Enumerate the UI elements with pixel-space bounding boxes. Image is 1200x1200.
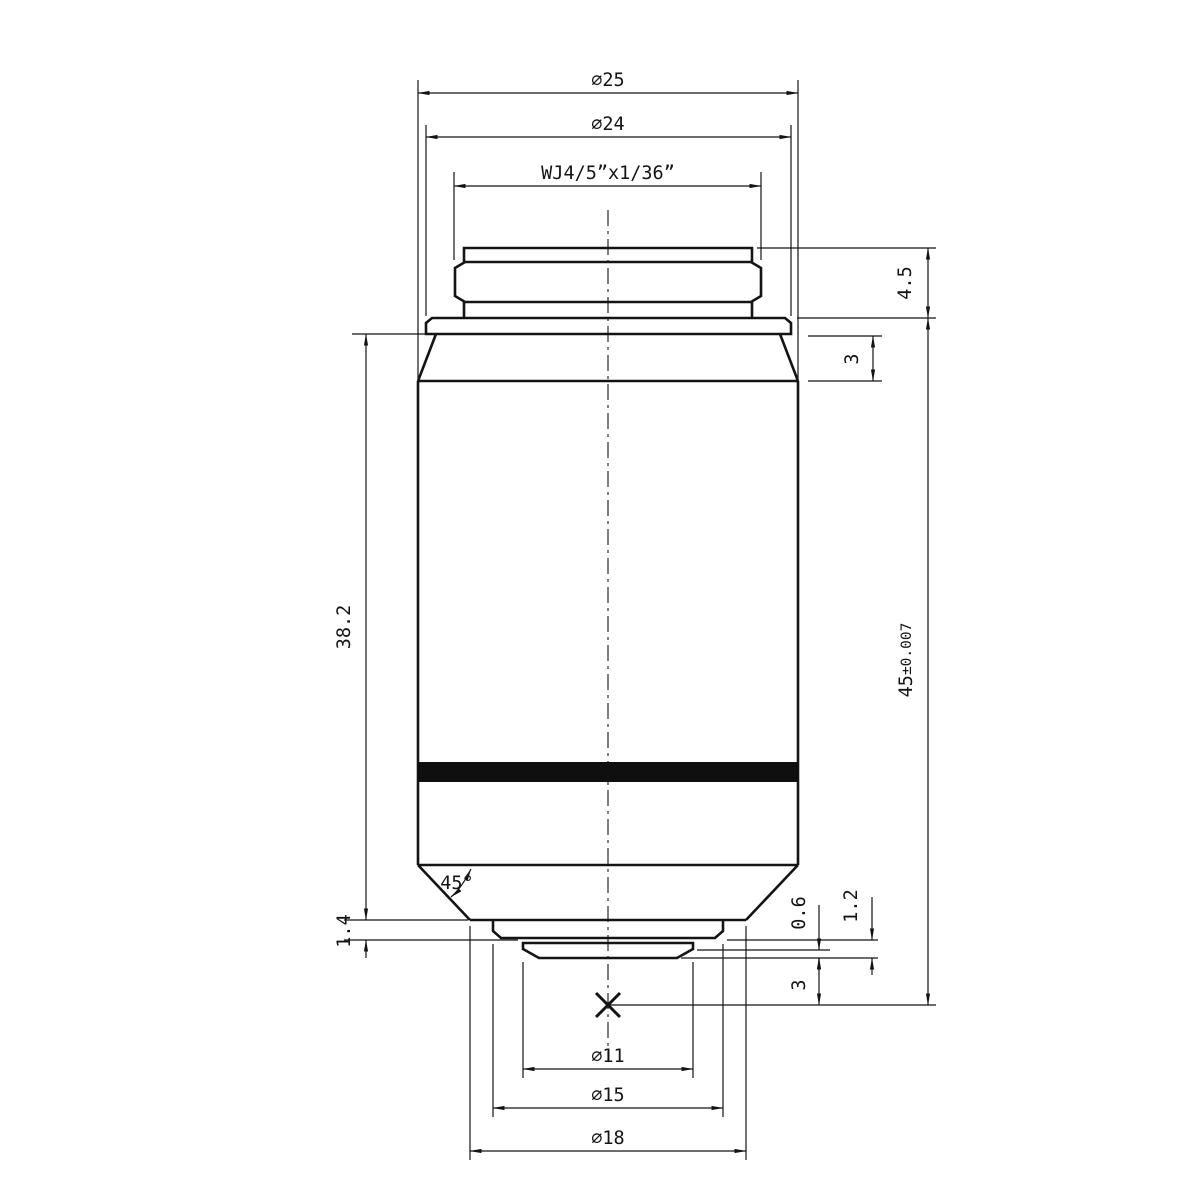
dim-thread-height: 4.5: [757, 248, 936, 318]
label-thread-height: 4.5: [895, 266, 916, 299]
label-front-lens-diameter: ⌀11: [591, 1046, 624, 1067]
label-mount-thread: WJ4/5”x1/36”: [541, 163, 675, 184]
parfocal-tolerance: ±0.007: [899, 623, 915, 675]
dim-collar-taper: 3: [808, 336, 882, 381]
dimensions: ⌀25 ⌀24 WJ4/5”x1/36” 4.5 3: [334, 70, 936, 1160]
parfocal-value: 45: [896, 675, 917, 697]
dim-body-length: 38.2: [334, 334, 430, 920]
label-parfocal-distance: 45±0.007: [896, 623, 917, 698]
dim-working-distance: 3: [789, 958, 819, 1005]
label-nose-step: 1.4: [334, 914, 355, 947]
label-front-step: 1.2: [841, 889, 862, 922]
label-collar-taper: 3: [842, 353, 863, 364]
objective-outline: [418, 210, 798, 1062]
color-band: [418, 762, 798, 782]
extension-line: [681, 940, 878, 958]
label-nose-diameter: ⌀18: [591, 1128, 624, 1149]
dim-front-step: 1.2: [681, 889, 878, 975]
dim-parfocal-distance: 45±0.007: [896, 318, 928, 1005]
label-working-distance: 3: [789, 979, 810, 990]
technical-drawing-canvas: ⌀25 ⌀24 WJ4/5”x1/36” 4.5 3: [0, 0, 1200, 1200]
dim-chamfer-angle: 45°: [440, 869, 473, 897]
objective-drawing: ⌀25 ⌀24 WJ4/5”x1/36” 4.5 3: [0, 0, 1200, 1200]
label-front-recess: 0.6: [789, 896, 810, 929]
focal-plane: [596, 993, 936, 1017]
dim-front-recess: 0.6: [697, 896, 830, 971]
label-chamfer-angle: 45°: [440, 873, 473, 894]
label-body-length: 38.2: [334, 605, 355, 650]
label-flange-diameter: ⌀24: [591, 114, 624, 135]
label-outer-diameter: ⌀25: [591, 70, 624, 91]
label-retainer-diameter: ⌀15: [591, 1085, 624, 1106]
